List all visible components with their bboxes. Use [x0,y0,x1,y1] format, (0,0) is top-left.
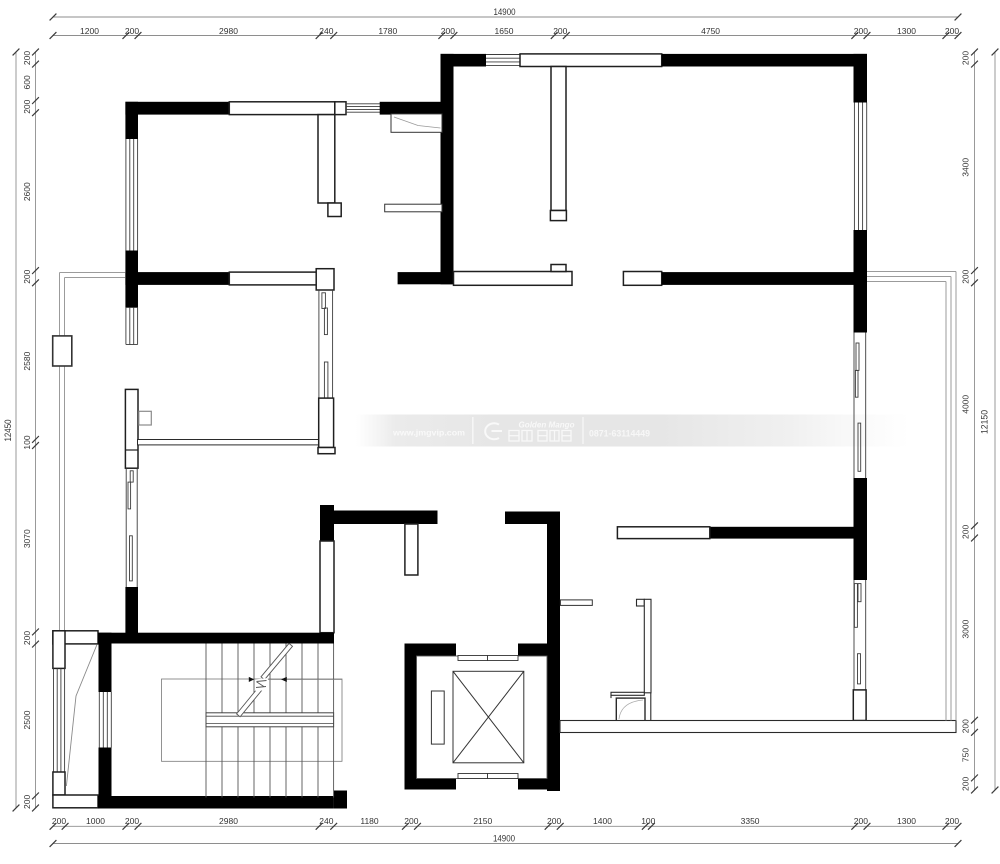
svg-text:240: 240 [319,26,333,36]
svg-text:200: 200 [945,26,959,36]
svg-text:200: 200 [854,26,868,36]
svg-text:200: 200 [547,816,561,826]
svg-text:1200: 1200 [80,26,99,36]
svg-text:600: 600 [22,75,32,89]
svg-text:2980: 2980 [219,26,238,36]
svg-text:200: 200 [961,269,971,283]
svg-text:200: 200 [961,719,971,733]
svg-text:2580: 2580 [22,351,32,370]
svg-text:12150: 12150 [979,410,989,434]
svg-text:200: 200 [441,26,455,36]
svg-text:4750: 4750 [701,26,720,36]
svg-text:200: 200 [553,26,567,36]
svg-text:3070: 3070 [22,529,32,548]
svg-text:200: 200 [125,26,139,36]
svg-text:1000: 1000 [86,816,105,826]
svg-text:2980: 2980 [219,816,238,826]
svg-text:4000: 4000 [961,395,971,414]
svg-text:1300: 1300 [897,26,916,36]
svg-text:1300: 1300 [897,816,916,826]
svg-text:200: 200 [961,51,971,65]
svg-text:2600: 2600 [22,182,32,201]
svg-text:1650: 1650 [495,26,514,36]
svg-text:100: 100 [641,816,655,826]
svg-text:200: 200 [52,816,66,826]
svg-text:www.jmgvip.com: www.jmgvip.com [392,428,465,438]
svg-text:200: 200 [22,269,32,283]
svg-text:2150: 2150 [473,816,492,826]
svg-text:200: 200 [961,777,971,791]
svg-text:3000: 3000 [961,619,971,638]
svg-text:200: 200 [854,816,868,826]
svg-text:14900: 14900 [493,833,515,843]
svg-text:200: 200 [22,51,32,65]
svg-text:240: 240 [319,816,333,826]
svg-text:3400: 3400 [961,158,971,177]
svg-text:200: 200 [22,99,32,113]
svg-text:200: 200 [22,795,32,809]
svg-text:200: 200 [404,816,418,826]
svg-text:14900: 14900 [494,7,516,17]
svg-text:100: 100 [22,435,32,449]
svg-text:200: 200 [961,525,971,539]
svg-text:0871-63114449: 0871-63114449 [589,429,650,440]
svg-text:2500: 2500 [22,710,32,729]
svg-text:750: 750 [961,748,971,762]
svg-text:12450: 12450 [3,420,13,442]
svg-text:1780: 1780 [378,26,397,36]
svg-text:1400: 1400 [593,816,612,826]
svg-text:200: 200 [22,631,32,645]
svg-text:1180: 1180 [360,816,379,826]
svg-text:Golden Mango: Golden Mango [519,421,575,430]
svg-text:200: 200 [125,816,139,826]
svg-text:200: 200 [945,816,959,826]
svg-text:3350: 3350 [741,816,760,826]
